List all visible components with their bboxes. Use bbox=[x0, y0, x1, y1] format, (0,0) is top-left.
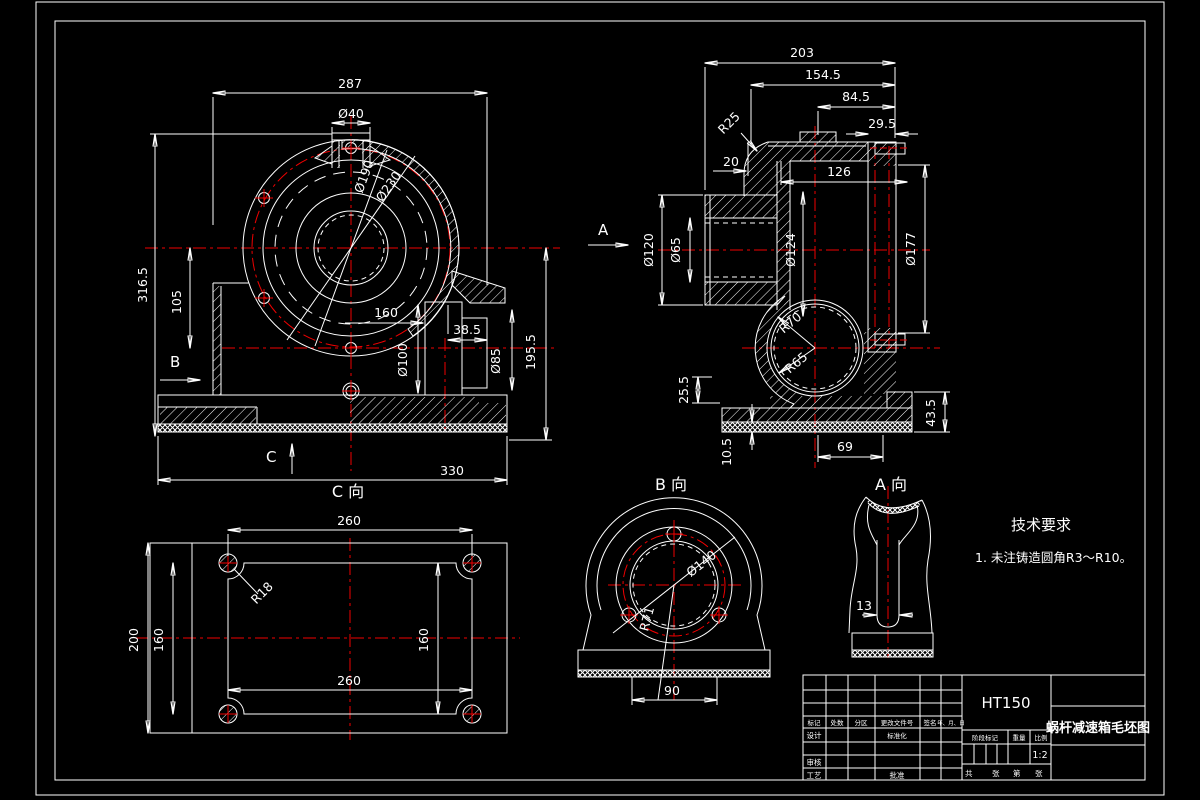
label-c: C bbox=[266, 448, 276, 466]
tb-number: 第 bbox=[1013, 768, 1021, 778]
label-a: A bbox=[598, 221, 609, 239]
tb-scale-value: 1:2 bbox=[1032, 750, 1047, 761]
dim-1545: 154.5 bbox=[805, 67, 841, 82]
tb-count: 处数 bbox=[831, 718, 845, 727]
dim-r25: R25 bbox=[715, 109, 743, 137]
b-view-caption: B 向 bbox=[655, 475, 687, 494]
dim-330: 330 bbox=[440, 463, 464, 478]
tb-sheet: 张 bbox=[1035, 769, 1043, 778]
tb-date: 年、月、日 bbox=[937, 719, 965, 727]
dim-200: 200 bbox=[126, 628, 141, 652]
tb-drawing-title: 蜗杆减速箱毛坯图 bbox=[1046, 720, 1150, 736]
dim-105: 105 bbox=[169, 290, 184, 314]
dim-160-left: 160 bbox=[151, 628, 166, 652]
dim-d65: Ø65 bbox=[668, 237, 683, 263]
dim-r71: R71 bbox=[636, 605, 657, 633]
dim-3165: 316.5 bbox=[135, 267, 150, 303]
dim-90: 90 bbox=[664, 683, 680, 698]
tb-stage-mark: 阶段标记 bbox=[972, 733, 999, 742]
dim-255: 25.5 bbox=[676, 376, 691, 404]
dim-69: 69 bbox=[837, 439, 853, 454]
dim-385: 38.5 bbox=[453, 322, 481, 337]
tb-sheets: 张 bbox=[992, 769, 1000, 778]
dim-d100: Ø100 bbox=[395, 343, 410, 377]
tb-signature: 签名 bbox=[924, 718, 937, 727]
dim-260-bottom: 260 bbox=[337, 673, 361, 688]
dim-13: 13 bbox=[856, 598, 872, 613]
c-view: C 向 R18 260 200 160 160 260 bbox=[126, 482, 520, 740]
dim-d120: Ø120 bbox=[641, 233, 656, 267]
tech-requirements-title: 技术要求 bbox=[1011, 516, 1071, 534]
b-view: B 向 Ø140 R71 90 bbox=[578, 475, 770, 705]
tb-design: 设计 bbox=[807, 730, 822, 740]
dim-d40: Ø40 bbox=[338, 106, 364, 121]
tb-doc-no: 更改文件号 bbox=[881, 718, 914, 727]
tb-audit: 审核 bbox=[807, 757, 822, 767]
dim-287: 287 bbox=[338, 76, 362, 91]
dim-d177: Ø177 bbox=[903, 232, 918, 266]
c-view-caption: C 向 bbox=[332, 482, 364, 501]
dim-20: 20 bbox=[723, 154, 739, 169]
dim-203: 203 bbox=[790, 45, 814, 60]
inner-frame bbox=[55, 21, 1145, 780]
dim-d124: Ø124 bbox=[783, 233, 798, 267]
dim-260-top: 260 bbox=[337, 513, 361, 528]
tb-standardization: 标准化 bbox=[887, 731, 907, 740]
dim-845: 84.5 bbox=[842, 89, 870, 104]
tb-approve: 批准 bbox=[890, 770, 905, 780]
a-view-caption: A 向 bbox=[875, 475, 907, 494]
label-b: B bbox=[170, 353, 180, 371]
dim-295: 29.5 bbox=[868, 116, 896, 131]
tech-requirements-item: 1. 未注铸造圆角R3～R10。 bbox=[975, 550, 1132, 565]
tb-weight: 重量 bbox=[1013, 734, 1027, 742]
tech-requirements: 技术要求 1. 未注铸造圆角R3～R10。 bbox=[975, 516, 1132, 565]
dim-r18: R18 bbox=[248, 579, 276, 607]
dim-160-right: 160 bbox=[416, 628, 431, 652]
tb-process: 工艺 bbox=[807, 771, 822, 780]
a-view: A 向 13 bbox=[849, 475, 933, 658]
dim-126: 126 bbox=[827, 164, 851, 179]
tb-total: 共 bbox=[965, 769, 973, 778]
dim-d85: Ø85 bbox=[488, 348, 503, 374]
dim-160: 160 bbox=[374, 305, 398, 320]
dim-105s: 10.5 bbox=[719, 438, 734, 466]
tb-material: HT150 bbox=[981, 694, 1030, 712]
side-view: 203 154.5 84.5 29.5 R25 20 126 Ø124 Ø177… bbox=[588, 45, 950, 468]
dim-d230: Ø230 bbox=[373, 168, 405, 204]
dim-r65: R65 bbox=[782, 349, 810, 376]
title-block: 标记 处数 分区 更改文件号 签名 年、月、日 设计 标准化 审核 工艺 批准 … bbox=[803, 675, 1150, 780]
dim-435: 43.5 bbox=[923, 399, 938, 427]
front-view: 287 Ø40 Ø190 Ø230 316.5 105 B 160 38.5 Ø… bbox=[135, 76, 560, 485]
tb-zone: 分区 bbox=[855, 718, 869, 727]
dim-1955: 195.5 bbox=[523, 334, 538, 370]
cad-canvas: 287 Ø40 Ø190 Ø230 316.5 105 B 160 38.5 Ø… bbox=[0, 0, 1200, 800]
tb-mark: 标记 bbox=[808, 718, 822, 727]
